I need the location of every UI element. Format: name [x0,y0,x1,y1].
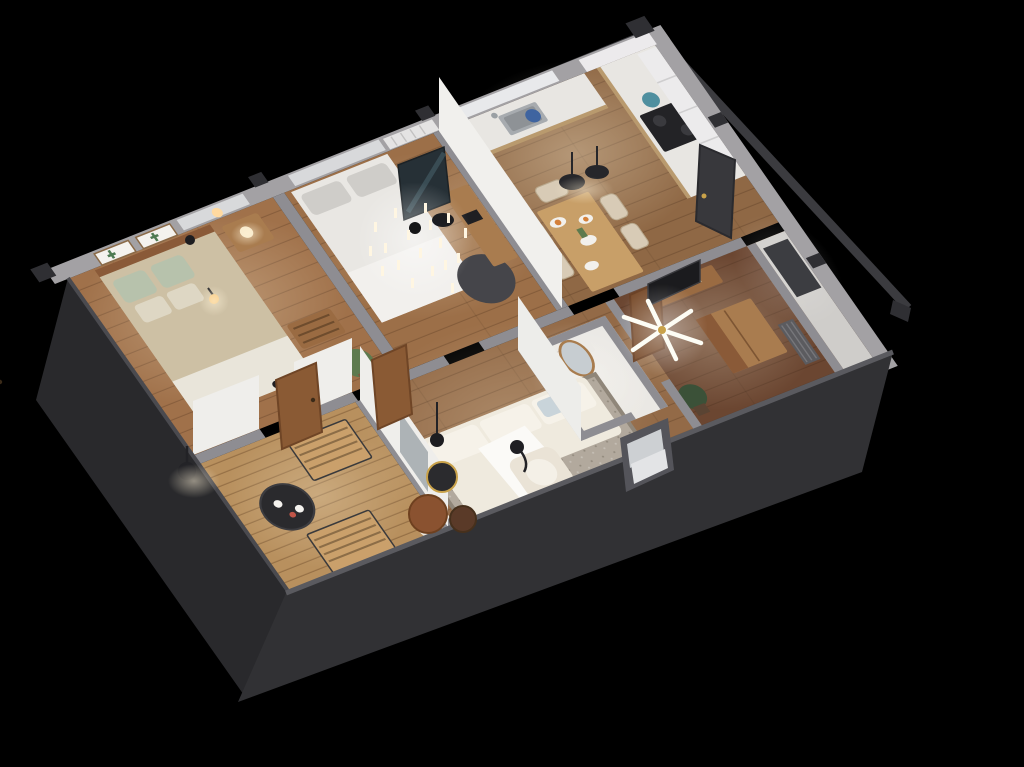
sphere-floor-lamp [510,440,524,454]
sputnik-hub [658,326,666,334]
second-bedroom-door [372,345,412,429]
entry-door [696,145,735,238]
black-pendant-shade [432,213,454,227]
sconce-glow [168,464,220,498]
floor-plan-svg [0,0,1024,767]
wire-side-table [427,462,457,492]
pendant-glow [554,176,614,204]
amber-lamp-glow [199,286,229,316]
door-knob [311,398,315,402]
ceiling-pendant [185,235,195,245]
entry-door-handle [702,194,707,199]
copper-coffee-table [409,495,447,533]
render-canvas [0,0,1024,767]
candle-chandelier [357,182,473,298]
round-side-table [450,506,476,532]
chandelier-hub [409,222,421,234]
chandelier-glow [357,182,473,298]
black-pendant-lamp [430,433,444,447]
sputnik-lamp [616,284,708,376]
